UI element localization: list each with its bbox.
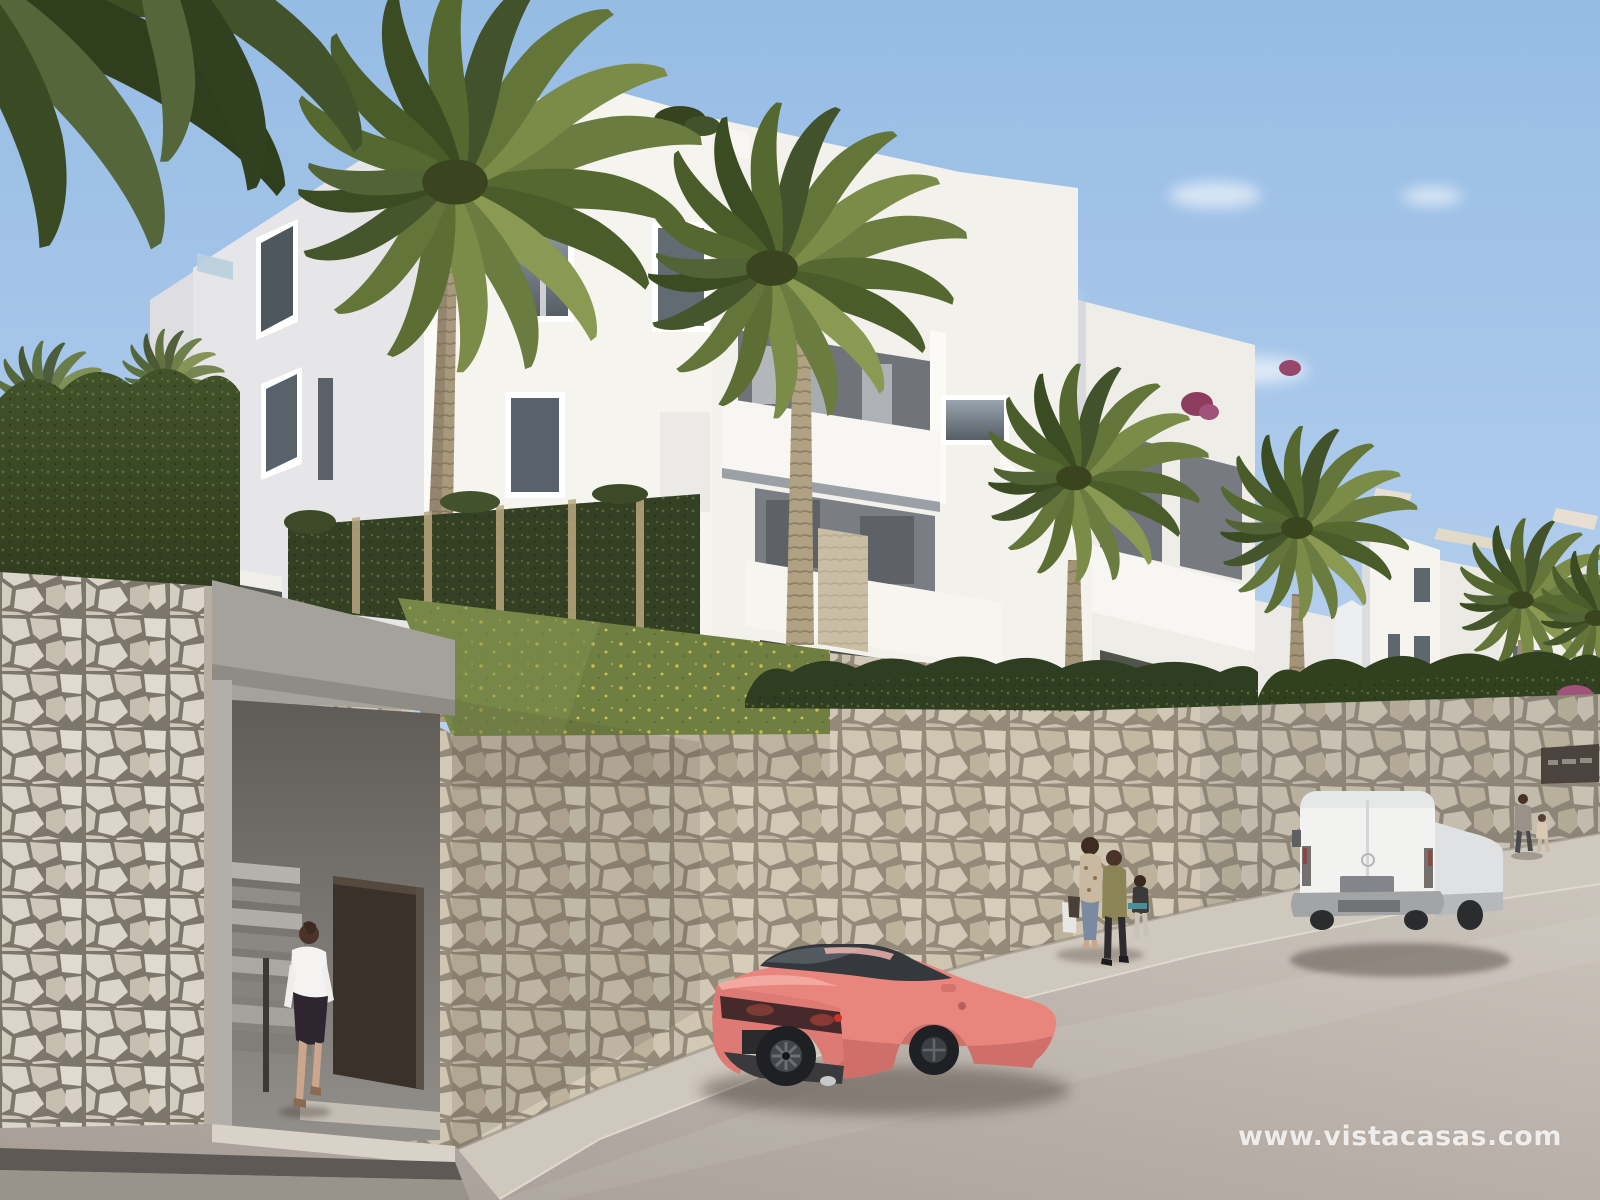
teal-board [1128, 903, 1147, 909]
wall-sign [1541, 744, 1599, 784]
car-door-handle [958, 1002, 966, 1010]
stairwell-entrance [212, 580, 455, 1152]
car-mirror [941, 984, 956, 992]
shopping-bag [1068, 896, 1080, 918]
van-mirror [1292, 830, 1301, 847]
wall-left-section [0, 572, 212, 1162]
car-wheel-rear [756, 1026, 816, 1086]
car-wheel-front [909, 1025, 959, 1075]
property-render: www.vistacasas.com [0, 0, 1600, 1200]
render-canvas [0, 0, 1600, 1200]
watermark-url: www.vistacasas.com [1238, 1121, 1562, 1152]
entrance-door[interactable] [333, 876, 424, 1090]
